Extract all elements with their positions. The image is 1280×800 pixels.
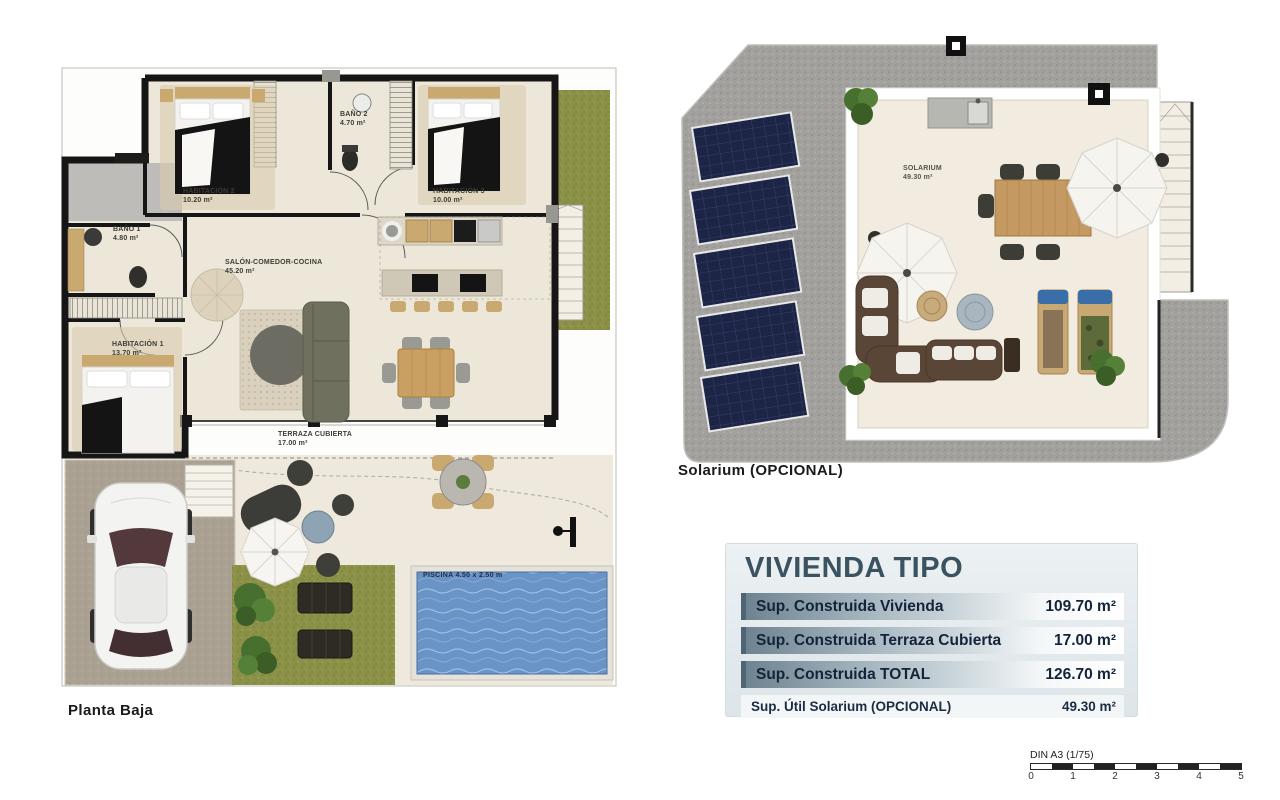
room-label-bano1: BAÑO 14.80 m² (113, 225, 141, 243)
scale-tick: 3 (1154, 771, 1160, 782)
solarium-drawing (670, 28, 1240, 478)
row-label: Sup. Útil Solarium (OPCIONAL) (741, 699, 1062, 714)
scale-bar-ticks: 0 1 2 3 4 5 (1030, 771, 1242, 784)
room-label-habitacion1: HABITACIÓN 113.70 m² (112, 340, 164, 358)
scale-tick: 1 (1070, 771, 1076, 782)
round-coffee-table (957, 294, 993, 330)
round-rug (191, 269, 243, 321)
scale-tick: 2 (1112, 771, 1118, 782)
solarium-caption: Solarium (OPCIONAL) (678, 462, 843, 479)
summary-rows: Sup. Construida Vivienda 109.70 m² Sup. … (741, 593, 1124, 718)
outdoor-sink (928, 98, 992, 128)
row-value: 49.30 m² (1062, 699, 1124, 714)
row-label: Sup. Construida Terraza Cubierta (746, 632, 1054, 650)
row-value: 126.70 m² (1045, 666, 1124, 684)
summary-row-solarium-optional: Sup. Útil Solarium (OPCIONAL) 49.30 m² (741, 695, 1124, 718)
summary-row-total: Sup. Construida TOTAL 126.70 m² (741, 661, 1124, 688)
exterior-stairs-driveway (185, 465, 233, 517)
parasol (241, 518, 309, 586)
room-label-terraza: TERRAZA CUBIERTA17.00 m² (278, 430, 352, 448)
swimming-pool (411, 566, 613, 680)
car (87, 483, 195, 669)
row-value: 17.00 m² (1054, 632, 1124, 650)
room-label-salon: SALÓN-COMEDOR-COCINA45.20 m² (225, 258, 322, 276)
scale-tick: 5 (1238, 771, 1244, 782)
summary-panel: VIVIENDA TIPO Sup. Construida Vivienda 1… (725, 543, 1138, 717)
summary-title: VIVIENDA TIPO (745, 552, 1138, 585)
pool-label: PISCINA 4.50 x 2.50 m (423, 572, 503, 579)
scale-bar-strip (1030, 763, 1242, 770)
scale-bar: DIN A3 (1/75) 0 1 2 3 4 5 (1030, 749, 1242, 784)
floor-plan-sheet: HABITACIÓN 210.20 m² BAÑO 24.70 m² HABIT… (0, 0, 1280, 800)
ground-floor-caption: Planta Baja (68, 702, 153, 719)
room-label-bano2: BAÑO 24.70 m² (340, 110, 368, 128)
scale-bar-label: DIN A3 (1/75) (1030, 749, 1242, 761)
row-value: 109.70 m² (1045, 598, 1124, 616)
scale-tick: 0 (1028, 771, 1034, 782)
rattan-table (917, 291, 947, 321)
room-label-solarium: SOLARIUM49.30 m² (903, 164, 942, 182)
solar-panels (690, 112, 808, 431)
summary-row-vivienda: Sup. Construida Vivienda 109.70 m² (741, 593, 1124, 620)
outdoor-round-table (432, 455, 494, 509)
entrance-door (115, 153, 149, 163)
room-label-habitacion3: HABITACIÓN 310.00 m² (433, 187, 485, 205)
row-label: Sup. Construida TOTAL (746, 666, 1045, 684)
row-label: Sup. Construida Vivienda (746, 598, 1045, 616)
scale-tick: 4 (1196, 771, 1202, 782)
ground-floor-drawing (60, 65, 620, 690)
summary-row-terraza: Sup. Construida Terraza Cubierta 17.00 m… (741, 627, 1124, 654)
sofa (303, 302, 349, 422)
room-label-habitacion2: HABITACIÓN 210.20 m² (183, 187, 235, 205)
